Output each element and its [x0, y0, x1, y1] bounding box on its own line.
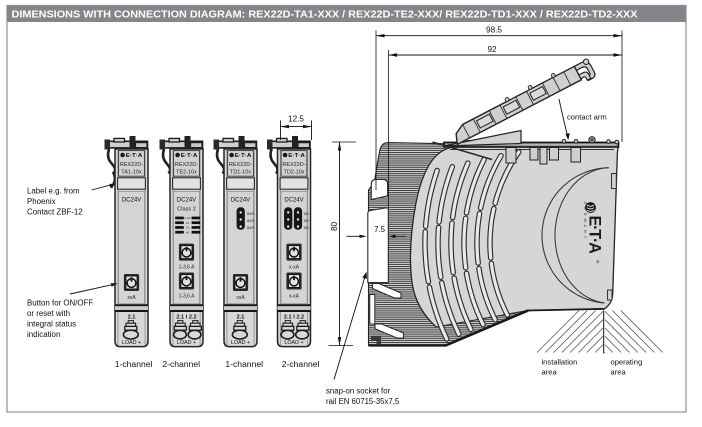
svg-text:2.1 I 2.2: 2.1 I 2.2 — [284, 315, 304, 321]
svg-text:REX22D-: REX22D- — [282, 162, 305, 168]
svg-text:2.1: 2.1 — [128, 315, 136, 321]
svg-text:REX22D-: REX22D- — [229, 162, 252, 168]
svg-text:1-channel: 1-channel — [115, 359, 153, 369]
svg-text:1-channel: 1-channel — [225, 359, 263, 369]
svg-text:operating: operating — [611, 357, 643, 366]
svg-text:GERMANY: GERMANY — [583, 202, 587, 242]
svg-text:xxA: xxA — [247, 218, 256, 223]
svg-text:2-channel: 2-channel — [282, 359, 320, 369]
svg-text:E·T·A: E·T·A — [586, 216, 604, 255]
svg-text:xxA: xxA — [247, 211, 256, 216]
svg-text:DC24V: DC24V — [284, 198, 303, 204]
svg-text:LOAD +: LOAD + — [231, 340, 250, 346]
svg-text:Contact ZBF-12: Contact ZBF-12 — [27, 208, 83, 217]
svg-text:7.5: 7.5 — [374, 225, 386, 234]
svg-text:E·T·A: E·T·A — [181, 153, 198, 159]
svg-text:installation: installation — [542, 357, 578, 366]
svg-text:TE2-10x: TE2-10x — [176, 169, 197, 175]
svg-text:DC24V: DC24V — [122, 198, 141, 204]
svg-text:area: area — [611, 368, 627, 377]
svg-text:or reset with: or reset with — [27, 309, 70, 318]
svg-text:E·T·A: E·T·A — [126, 153, 143, 159]
svg-text:2A: 2A — [186, 221, 190, 225]
svg-text:xA: xA — [304, 218, 310, 223]
svg-text:E·T·A: E·T·A — [235, 153, 252, 159]
svg-text:xA: xA — [304, 225, 310, 230]
svg-text:xA: xA — [304, 211, 310, 216]
svg-text:LOAD +: LOAD + — [177, 340, 196, 346]
svg-text:Phoenix: Phoenix — [27, 197, 56, 206]
svg-text:0,5A: 0,5A — [185, 216, 191, 220]
svg-text:TA1-10x: TA1-10x — [121, 169, 142, 175]
svg-text:2.1 I 2.2: 2.1 I 2.2 — [176, 315, 196, 321]
svg-text:98.5: 98.5 — [486, 26, 502, 35]
svg-text:2.1: 2.1 — [237, 315, 245, 321]
svg-text:xxA: xxA — [247, 225, 256, 230]
svg-text:DIMENSIONS WITH CONNECTION DIA: DIMENSIONS WITH CONNECTION DIAGRAM: REX2… — [12, 9, 639, 20]
svg-text:DC24V: DC24V — [177, 198, 196, 204]
svg-text:E·T·A: E·T·A — [288, 153, 305, 159]
svg-text:1-3,6 A: 1-3,6 A — [179, 264, 196, 270]
svg-text:92: 92 — [487, 45, 497, 54]
svg-text:Label e.g. from: Label e.g. from — [27, 187, 80, 196]
svg-text:x-xA: x-xA — [289, 294, 300, 300]
svg-text:REX22D-: REX22D- — [175, 162, 198, 168]
svg-text:LOAD +: LOAD + — [284, 340, 303, 346]
svg-text:rail EN 60715-35x7,5: rail EN 60715-35x7,5 — [326, 397, 400, 406]
svg-text:TD2-10x: TD2-10x — [283, 169, 304, 175]
svg-text:integral status: integral status — [27, 320, 76, 329]
svg-text:indication: indication — [27, 330, 60, 339]
svg-text:6A: 6A — [186, 230, 190, 234]
svg-text:xxA: xxA — [127, 295, 136, 301]
svg-text:80: 80 — [330, 221, 339, 231]
svg-text:2-channel: 2-channel — [162, 359, 200, 369]
svg-text:LOAD +: LOAD + — [122, 340, 141, 346]
svg-text:REX22D-: REX22D- — [120, 162, 143, 168]
svg-text:x-xA: x-xA — [289, 264, 300, 270]
svg-text:Button for ON/OFF: Button for ON/OFF — [27, 299, 93, 308]
svg-text:3A: 3A — [186, 226, 190, 230]
svg-text:area: area — [542, 368, 558, 377]
svg-text:12.5: 12.5 — [288, 114, 304, 123]
svg-text:Class 2: Class 2 — [177, 207, 196, 213]
svg-text:TD1-10x: TD1-10x — [230, 169, 251, 175]
svg-text:1-3,6 A: 1-3,6 A — [179, 294, 196, 300]
svg-text:DC24V: DC24V — [231, 198, 250, 204]
svg-text:xxA: xxA — [236, 295, 245, 301]
svg-text:contact arm: contact arm — [567, 113, 607, 122]
svg-text:snap-on socket for: snap-on socket for — [326, 387, 391, 396]
